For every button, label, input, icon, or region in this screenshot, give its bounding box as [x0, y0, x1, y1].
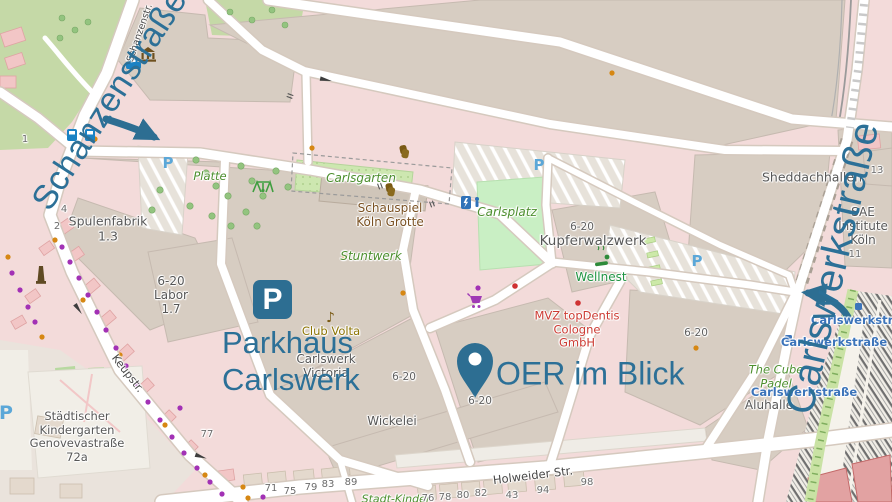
house-number: 79 — [305, 482, 318, 494]
parkhaus-label-line1: Parkhaus — [222, 325, 353, 361]
label-carlsgarten: Carlsgarten — [326, 171, 396, 185]
house-number: 83 — [322, 479, 335, 491]
parkhaus-label-line2: Carlswerk — [222, 362, 360, 398]
label-kupferwalzwerk: Kupferwalzwerk — [540, 234, 647, 250]
label-kindergarten: Städtischer Kindergarten Genovevastraße … — [30, 410, 125, 464]
house-number: 2 — [54, 221, 60, 233]
label-spulenfabrik: Spulenfabrik 1.3 — [69, 214, 148, 244]
house-number: 71 — [265, 483, 278, 495]
label-schauspiel: Schauspiel Köln Grotte — [356, 201, 423, 229]
parking-map-icon: P — [534, 157, 545, 175]
house-number: 98 — [581, 477, 594, 489]
label-platte: Platte — [193, 170, 226, 184]
house-number: 94 — [537, 485, 550, 497]
house-number: 82 — [475, 488, 488, 500]
house-number: 77 — [201, 429, 214, 441]
label-carlsplatz: Carlsplatz — [477, 205, 537, 219]
house-number: 80 — [457, 490, 470, 502]
label-wellnest: Wellnest — [575, 270, 626, 284]
unit-label: 6-20 — [684, 327, 708, 339]
parkhaus-icon-letter: P — [262, 285, 282, 315]
house-number: 43 — [506, 490, 519, 502]
marker-label: OER im Blick — [496, 356, 684, 393]
parking-map-icon: P — [0, 402, 13, 424]
house-number: 76 — [422, 493, 435, 502]
label-labor: 6-20 Labor 1.7 — [154, 274, 188, 316]
label-mvz-topdentis: MVZ topDentis Cologne GmbH — [534, 310, 619, 351]
house-number: 75 — [284, 486, 297, 498]
house-number: 78 — [439, 492, 452, 502]
unit-label: 6-20 — [570, 221, 594, 233]
parking-map-icon: P — [692, 253, 703, 271]
unit-label: 6-20 — [468, 395, 492, 407]
parking-map-icon: P — [163, 155, 174, 173]
label-stadt-kinder: Stadt-Kinder — [362, 494, 431, 502]
unit-label: 6-20 — [392, 371, 416, 383]
house-number: 89 — [345, 477, 358, 489]
house-number: 1 — [22, 134, 28, 146]
label-stuntwerk: Stuntwerk — [340, 249, 401, 263]
map-canvas[interactable]: ♪ Schanzenstr. Keupstr. Holweider Str. S… — [0, 0, 892, 502]
parkhaus-icon[interactable]: P — [253, 280, 292, 319]
label-wickelei: Wickelei — [367, 414, 417, 428]
